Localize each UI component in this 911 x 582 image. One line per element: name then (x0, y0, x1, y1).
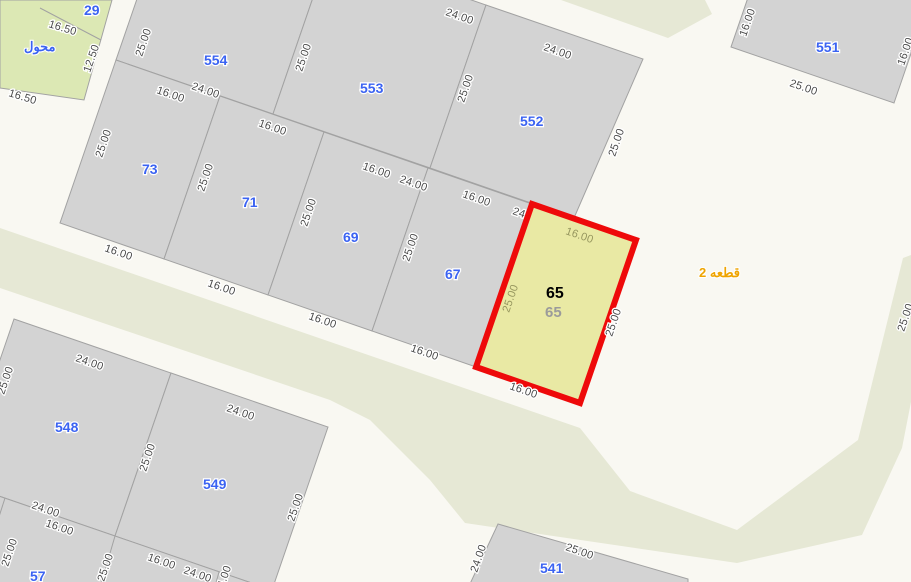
selected-parcel-number-secondary: 65 (545, 304, 562, 321)
map-canvas[interactable]: 16.00 24.00 29 16.50 12.50 محول 16.50 25… (0, 0, 911, 582)
parcel-label-29: 29 (84, 2, 100, 18)
parcel-label-67: 67 (445, 266, 461, 282)
parcel-label-541: 541 (540, 560, 564, 576)
cadastral-map: 16.00 24.00 29 16.50 12.50 محول 16.50 25… (0, 0, 911, 582)
parcel-label-69: 69 (343, 229, 359, 245)
parcel-label-553: 553 (360, 80, 384, 96)
parcel-label-73: 73 (142, 161, 158, 177)
parcel-label-551: 551 (816, 39, 840, 55)
selected-parcel-number: 65 (546, 285, 564, 302)
parcel-label-71: 71 (242, 194, 258, 210)
transformer-label: محول (24, 39, 56, 55)
parcel-label-548: 548 (55, 419, 79, 435)
parcel-label-57: 57 (30, 568, 46, 582)
block-label: قطعه 2 (699, 265, 740, 280)
parcel-label-552: 552 (520, 113, 544, 129)
parcel-label-554: 554 (204, 52, 228, 68)
parcel-label-549: 549 (203, 476, 227, 492)
